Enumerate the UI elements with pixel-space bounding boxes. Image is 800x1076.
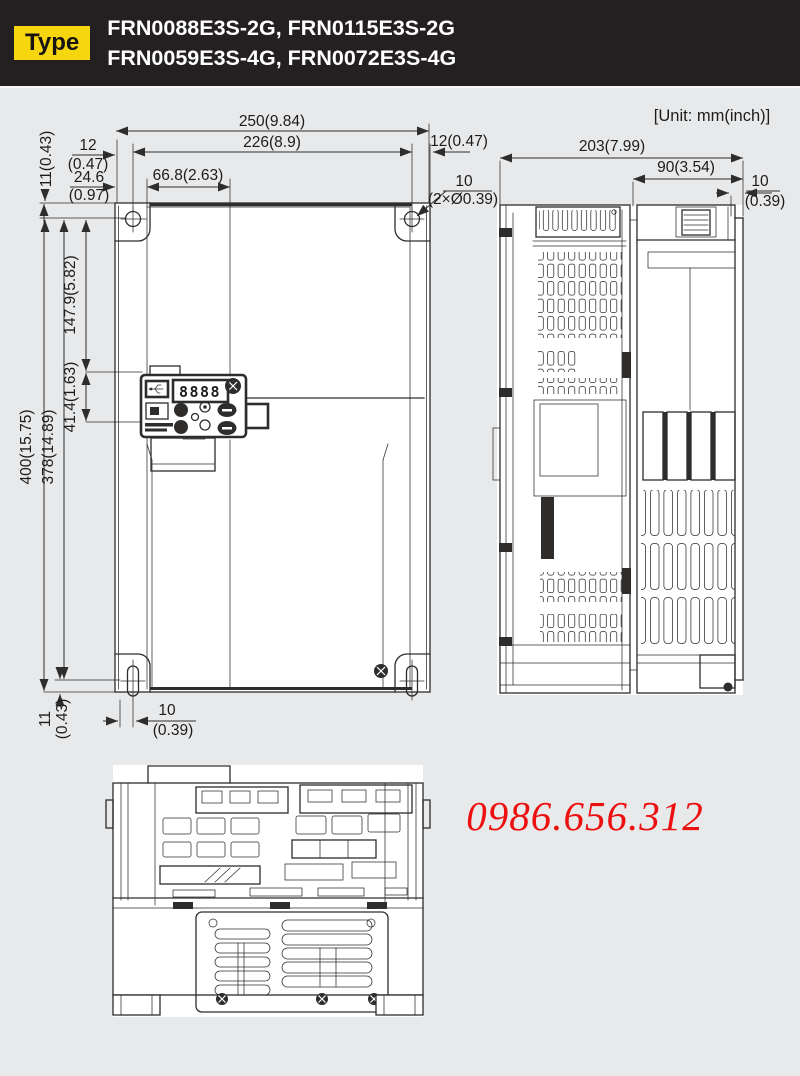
dim-right-hole-offset: 12(0.47) [430, 133, 488, 150]
dim-keypad-height: 41.4(1.63) [62, 362, 79, 433]
dim-hole-size-note: (2×Ø0.39) [428, 191, 498, 208]
dim-overall-height: 400(15.75) [18, 410, 35, 485]
dim-top-hole-offset: 11(0.43) [38, 131, 55, 188]
stop-button [218, 421, 237, 435]
dim-keypad-width-offset: 66.8(2.63) [153, 167, 224, 184]
bottom-view [106, 765, 430, 1017]
dimension-drawing: 8888 [0, 0, 800, 1076]
dim-bottom-slot-offset-inch: (0.39) [153, 722, 194, 739]
unit-label: [Unit: mm(inch)] [654, 107, 770, 125]
watermark-phone-number: 0986.656.312 [440, 792, 730, 840]
dim-overall-depth: 203(7.99) [579, 138, 645, 155]
dim-hole-span-width: 226(8.9) [243, 134, 301, 151]
cover-screw [316, 993, 328, 1005]
dim-body-depth: 90(3.54) [657, 159, 715, 176]
dim-hole-size-mm: 10 [455, 173, 473, 190]
front-view: 8888 [115, 203, 430, 700]
cover-screw [216, 993, 228, 1005]
dim-bottom-slot-offset-mm: 10 [158, 702, 176, 719]
seven-segment-display: 8888 [173, 380, 228, 402]
dim-bottom-hole-offset-inch: (0.43) [54, 699, 71, 740]
dim-keypad-top-offset: 147.9(5.82) [62, 255, 79, 334]
keypad: 8888 [141, 366, 246, 437]
keypad-display-value: 8888 [179, 383, 221, 401]
dim-left-hole-offset-mm: 12 [79, 137, 96, 154]
side-view [493, 205, 743, 695]
run-button [218, 403, 237, 417]
dim-keypad-left-offset-inch: (0.97) [69, 187, 110, 204]
dim-front-cover-depth-inch: (0.39) [745, 193, 786, 210]
dim-front-cover-depth-mm: 10 [751, 173, 769, 190]
dim-hole-span-height: 378(14.89) [40, 410, 57, 485]
reset-button [174, 420, 188, 434]
dim-overall-width: 250(9.84) [239, 113, 305, 130]
dim-bottom-hole-offset-mm: 11 [37, 711, 54, 727]
prg-button [174, 403, 188, 417]
cover-screw [374, 664, 388, 678]
dim-keypad-left-offset-mm: 24.6 [74, 169, 104, 186]
